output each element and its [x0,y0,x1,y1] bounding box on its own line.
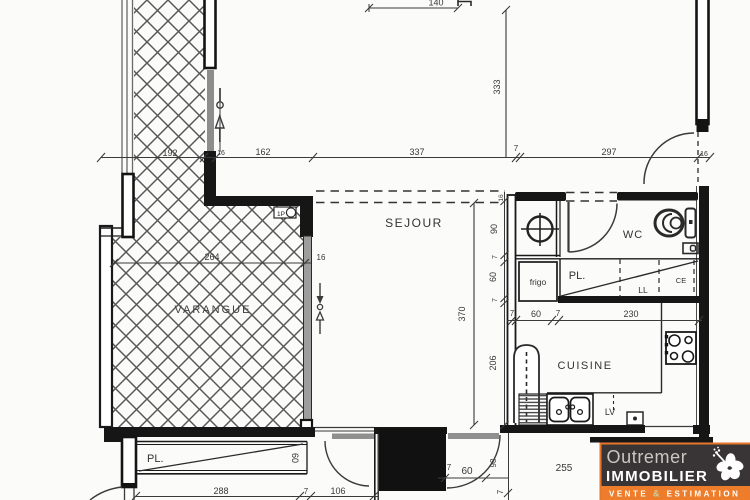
svg-text:16: 16 [700,151,708,158]
svg-text:16: 16 [498,194,505,202]
svg-text:162: 162 [255,147,270,157]
svg-text:VARANGUE: VARANGUE [175,304,252,316]
svg-text:LL: LL [638,285,648,295]
svg-text:333: 333 [492,79,502,94]
svg-text:7: 7 [492,298,499,302]
svg-text:IMMOBILIER: IMMOBILIER [606,468,708,485]
svg-text:140: 140 [428,0,443,8]
svg-text:7: 7 [496,489,505,494]
svg-text:337: 337 [409,147,424,157]
svg-text:WC: WC [623,229,643,241]
svg-text:7: 7 [304,487,309,496]
svg-text:255: 255 [556,463,573,474]
svg-text:60: 60 [488,272,498,282]
svg-text:PL.: PL. [147,453,164,465]
svg-text:288: 288 [213,486,228,496]
svg-text:16: 16 [317,253,326,262]
svg-text:60: 60 [290,453,300,463]
svg-text:CUISINE: CUISINE [557,360,612,372]
svg-text:60: 60 [461,466,473,477]
svg-text:264: 264 [204,252,219,262]
svg-text:16: 16 [217,150,225,157]
svg-text:Outremer: Outremer [607,447,688,467]
svg-text:370: 370 [457,306,467,321]
svg-text:90: 90 [489,224,499,234]
svg-text:CE: CE [676,276,686,285]
svg-text:7: 7 [447,463,452,472]
svg-text:98: 98 [489,458,498,467]
svg-text:frigo: frigo [530,277,547,287]
svg-text:1P: 1P [277,211,285,218]
svg-text:206: 206 [488,355,498,370]
svg-text:106: 106 [330,486,345,496]
svg-text:297: 297 [601,147,616,157]
svg-text:7: 7 [492,255,499,259]
svg-text:60: 60 [531,309,541,319]
svg-text:230: 230 [623,309,638,319]
svg-text:192: 192 [162,148,177,158]
svg-text:7: 7 [556,309,561,318]
svg-text:VENTE & ESTIMATION: VENTE & ESTIMATION [609,489,740,499]
svg-text:SEJOUR: SEJOUR [385,216,443,230]
svg-text:PL.: PL. [569,270,586,282]
svg-text:7: 7 [510,309,515,318]
svg-text:7: 7 [514,144,519,153]
